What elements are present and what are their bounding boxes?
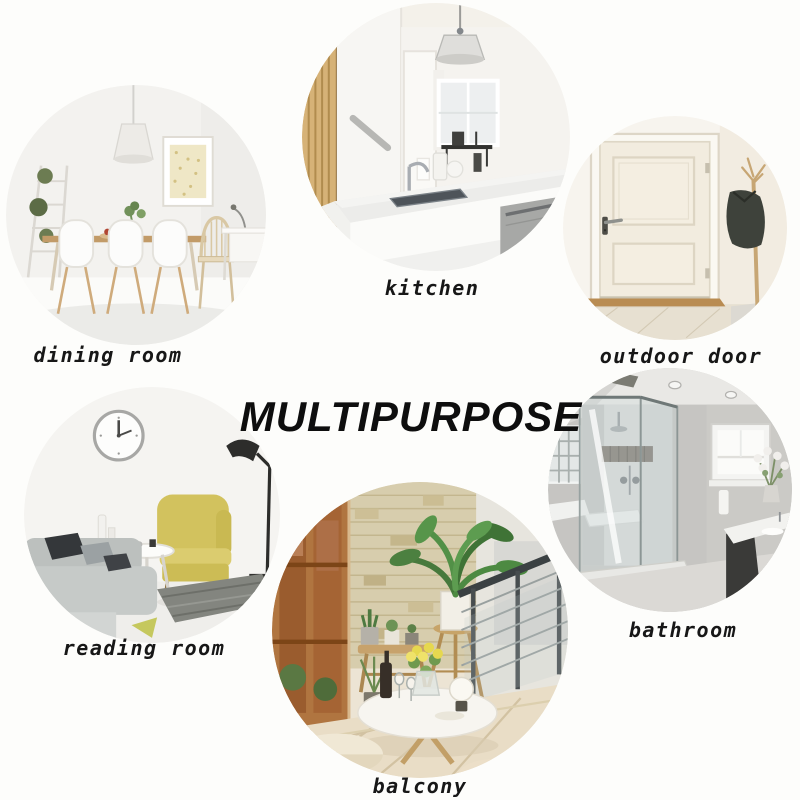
outdoor-door-label: outdoor door	[600, 344, 763, 368]
bathroom-figure	[548, 368, 792, 612]
balcony-photo	[272, 482, 568, 778]
wood-framed-door	[272, 482, 349, 731]
bathroom-window	[709, 424, 772, 486]
wall-clock	[94, 411, 143, 460]
kitchen-label: kitchen	[385, 276, 480, 300]
background-window	[433, 70, 497, 150]
hanging-jacket	[726, 190, 764, 248]
balcony-figure	[272, 482, 568, 778]
dining-room-figure	[6, 85, 266, 345]
threshold	[582, 299, 725, 307]
kitchen-illustration	[302, 3, 570, 271]
dining-room-photo	[6, 85, 266, 345]
balcony-label: balcony	[373, 774, 468, 798]
shower-glass-enclosure	[575, 397, 690, 585]
dishwasher	[500, 196, 564, 267]
poster: MULTIPURPOSE dining room kitchen outdoor…	[0, 0, 800, 800]
dining-room-illustration	[6, 85, 266, 345]
outdoor-door-illustration	[563, 116, 787, 340]
outdoor-door-figure	[563, 116, 787, 340]
kitchen-figure	[302, 3, 570, 271]
wall-art-frame	[163, 137, 212, 206]
bathroom-photo	[548, 368, 792, 612]
bathroom-illustration	[548, 368, 792, 612]
balcony-illustration	[272, 482, 568, 778]
dining-room-label: dining room	[34, 343, 183, 367]
bathroom-label: bathroom	[629, 618, 737, 642]
outdoor-door-photo	[563, 116, 787, 340]
poster-title: MULTIPURPOSE	[240, 393, 583, 441]
reading-room-label: reading room	[63, 636, 226, 660]
kitchen-photo	[302, 3, 570, 271]
